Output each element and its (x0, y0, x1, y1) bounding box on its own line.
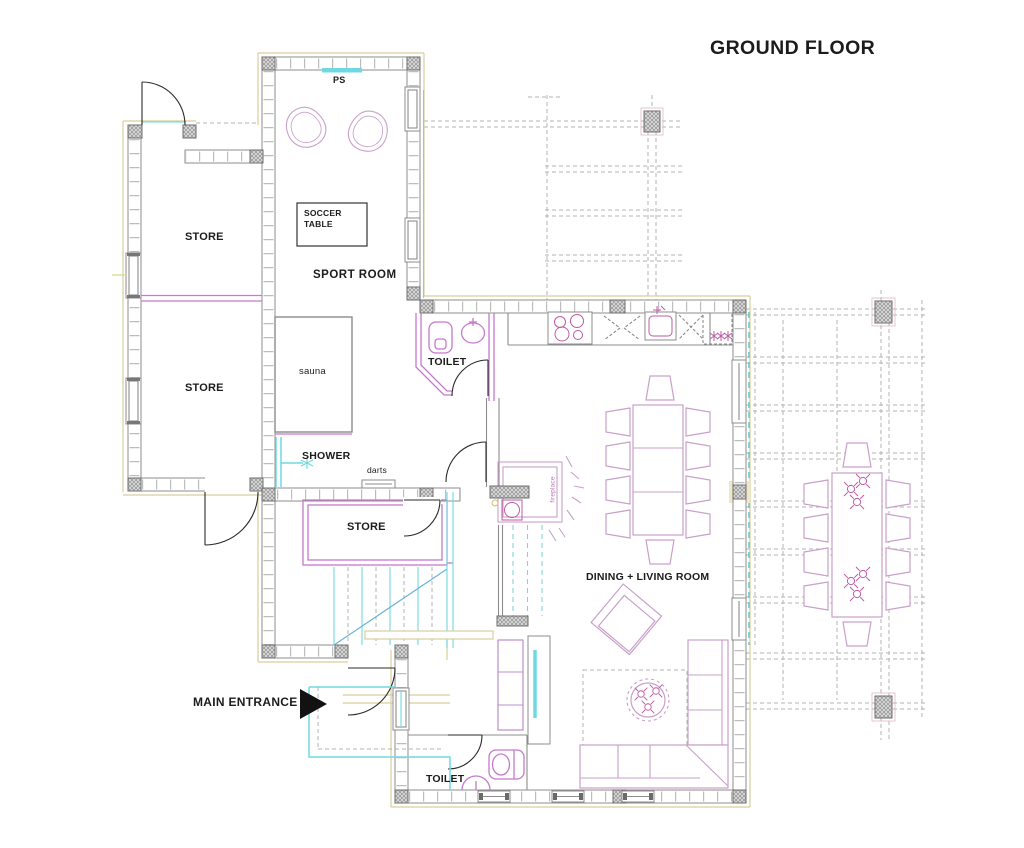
fireplace-hearth (490, 486, 529, 498)
basin (462, 318, 485, 343)
window-sport-right-1 (405, 87, 420, 131)
window-right-2 (732, 598, 746, 640)
door-toilet-lower (448, 735, 482, 769)
label-sauna: sauna (299, 366, 326, 377)
dining-table (633, 405, 683, 535)
window-store-upper (126, 253, 141, 298)
pergola-column (875, 696, 892, 718)
toilet-lower-fixtures (462, 750, 524, 790)
dining-set (606, 376, 710, 564)
tv-panel (528, 636, 550, 744)
label-sport-room: SPORT ROOM (313, 269, 397, 281)
armchair (591, 584, 661, 654)
window-bottom-2 (552, 791, 584, 802)
dart-board (362, 480, 395, 488)
wc (429, 322, 452, 353)
pergola-column (644, 111, 660, 132)
label-shower: SHOWER (302, 450, 350, 462)
label-dining-living: DINING + LIVING ROOM (586, 571, 709, 583)
label-store-upper: STORE (185, 231, 224, 243)
page-title: GROUND FLOOR (710, 37, 875, 60)
cooktop (548, 312, 592, 344)
window-store-middle (126, 378, 141, 424)
door-hall-living (446, 442, 486, 482)
bean-bag-chair (346, 108, 391, 154)
label-darts: darts (367, 465, 387, 475)
floor-plan-canvas: GROUND FLOOR PS SOCCER TABLE SPORT ROOM … (0, 0, 1024, 848)
label-main-entrance: MAIN ENTRANCE (193, 695, 298, 709)
label-soccer-table: SOCCER TABLE (304, 208, 360, 231)
basin (462, 776, 490, 790)
stair-handrail (365, 631, 493, 639)
window-bottom-1 (478, 791, 510, 802)
ps-screen (322, 68, 362, 73)
fireplace (490, 456, 584, 541)
outdoor-dining-set (804, 443, 910, 646)
living-furniture (580, 584, 728, 788)
label-toilet-lower: TOILET (426, 773, 464, 785)
window-right-1 (732, 360, 746, 423)
coffee-table (627, 679, 669, 721)
label-toilet-upper: TOILET (428, 356, 466, 368)
staircase (334, 492, 493, 648)
label-fireplace: fireplace (550, 468, 557, 512)
wc (489, 750, 524, 779)
label-store-inner: STORE (347, 521, 386, 533)
window-sport-right-2 (405, 218, 420, 262)
door-store-bottom (205, 492, 258, 545)
window-entrance-hall (393, 688, 409, 730)
label-store-middle: STORE (185, 382, 224, 394)
toilet-upper-fixtures (429, 318, 485, 353)
entrance-arrow (300, 689, 327, 719)
tv-cabinet (498, 640, 523, 730)
floor-plan-drawing (0, 0, 1024, 848)
shower-fixture (276, 437, 313, 487)
pergola-column (875, 301, 892, 323)
bean-bag-chair (281, 102, 330, 152)
tv-unit (497, 616, 550, 744)
door-main-entrance (348, 668, 395, 715)
label-ps: PS (333, 75, 345, 85)
door-store-upper (142, 82, 185, 125)
kitchen-stars (710, 331, 732, 341)
window-bottom-3 (622, 791, 654, 802)
sauna-shower (275, 317, 395, 488)
